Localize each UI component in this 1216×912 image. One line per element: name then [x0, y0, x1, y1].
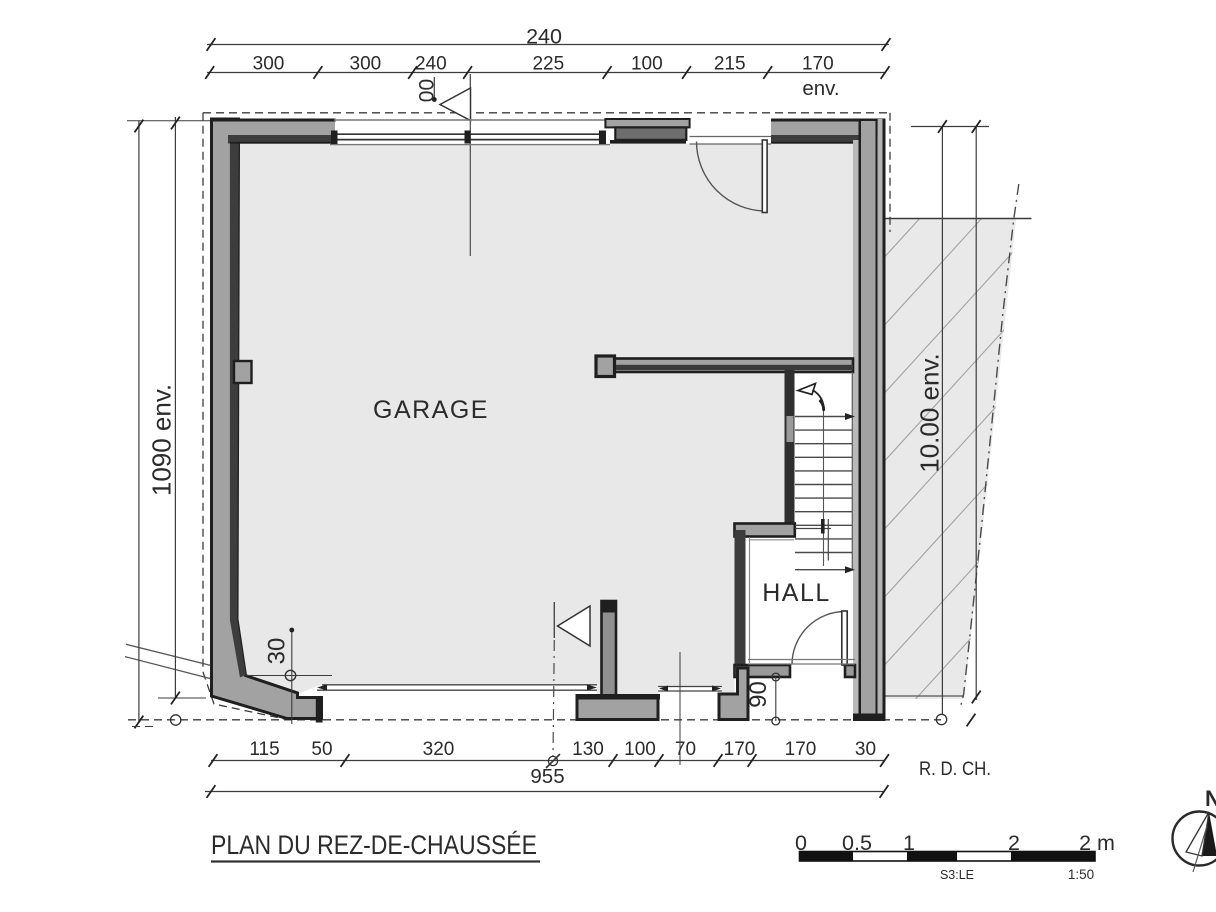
svg-text:00: 00 — [416, 79, 439, 102]
svg-text:50: 50 — [311, 739, 332, 760]
svg-text:115: 115 — [249, 739, 279, 760]
svg-text:90: 90 — [745, 681, 772, 708]
svg-text:70: 70 — [675, 739, 696, 760]
svg-text:100: 100 — [624, 739, 656, 760]
svg-text:GARAGE: GARAGE — [373, 396, 489, 424]
svg-text:0: 0 — [795, 831, 807, 855]
svg-text:215: 215 — [714, 54, 746, 75]
svg-text:30: 30 — [855, 739, 876, 760]
svg-text:PLAN DU REZ-DE-CHAUSSÉE: PLAN DU REZ-DE-CHAUSSÉE — [211, 830, 537, 860]
svg-text:100: 100 — [631, 54, 663, 75]
svg-text:170: 170 — [785, 739, 817, 760]
svg-text:1:50: 1:50 — [1068, 867, 1094, 882]
svg-text:env.: env. — [802, 77, 839, 100]
svg-text:300: 300 — [253, 54, 285, 75]
svg-text:170: 170 — [802, 54, 834, 75]
svg-text:HALL: HALL — [762, 579, 831, 607]
svg-text:240: 240 — [526, 25, 562, 49]
svg-text:240: 240 — [415, 54, 447, 75]
svg-text:R. D. CH.: R. D. CH. — [919, 759, 991, 780]
svg-text:2: 2 — [1008, 831, 1020, 855]
svg-text:2 m: 2 m — [1079, 831, 1115, 855]
svg-text:300: 300 — [350, 54, 382, 75]
svg-text:130: 130 — [572, 739, 604, 760]
svg-text:170: 170 — [724, 739, 756, 760]
svg-text:30: 30 — [264, 638, 291, 665]
svg-text:955: 955 — [530, 765, 564, 788]
svg-text:320: 320 — [423, 739, 455, 760]
svg-text:0.5: 0.5 — [842, 831, 872, 855]
svg-text:S3:LE: S3:LE — [940, 868, 974, 882]
svg-text:225: 225 — [532, 54, 564, 75]
svg-text:N: N — [1205, 786, 1216, 811]
svg-text:10.00 env.: 10.00 env. — [915, 353, 945, 473]
svg-text:1090 env.: 1090 env. — [147, 384, 177, 496]
svg-text:1: 1 — [903, 831, 915, 855]
